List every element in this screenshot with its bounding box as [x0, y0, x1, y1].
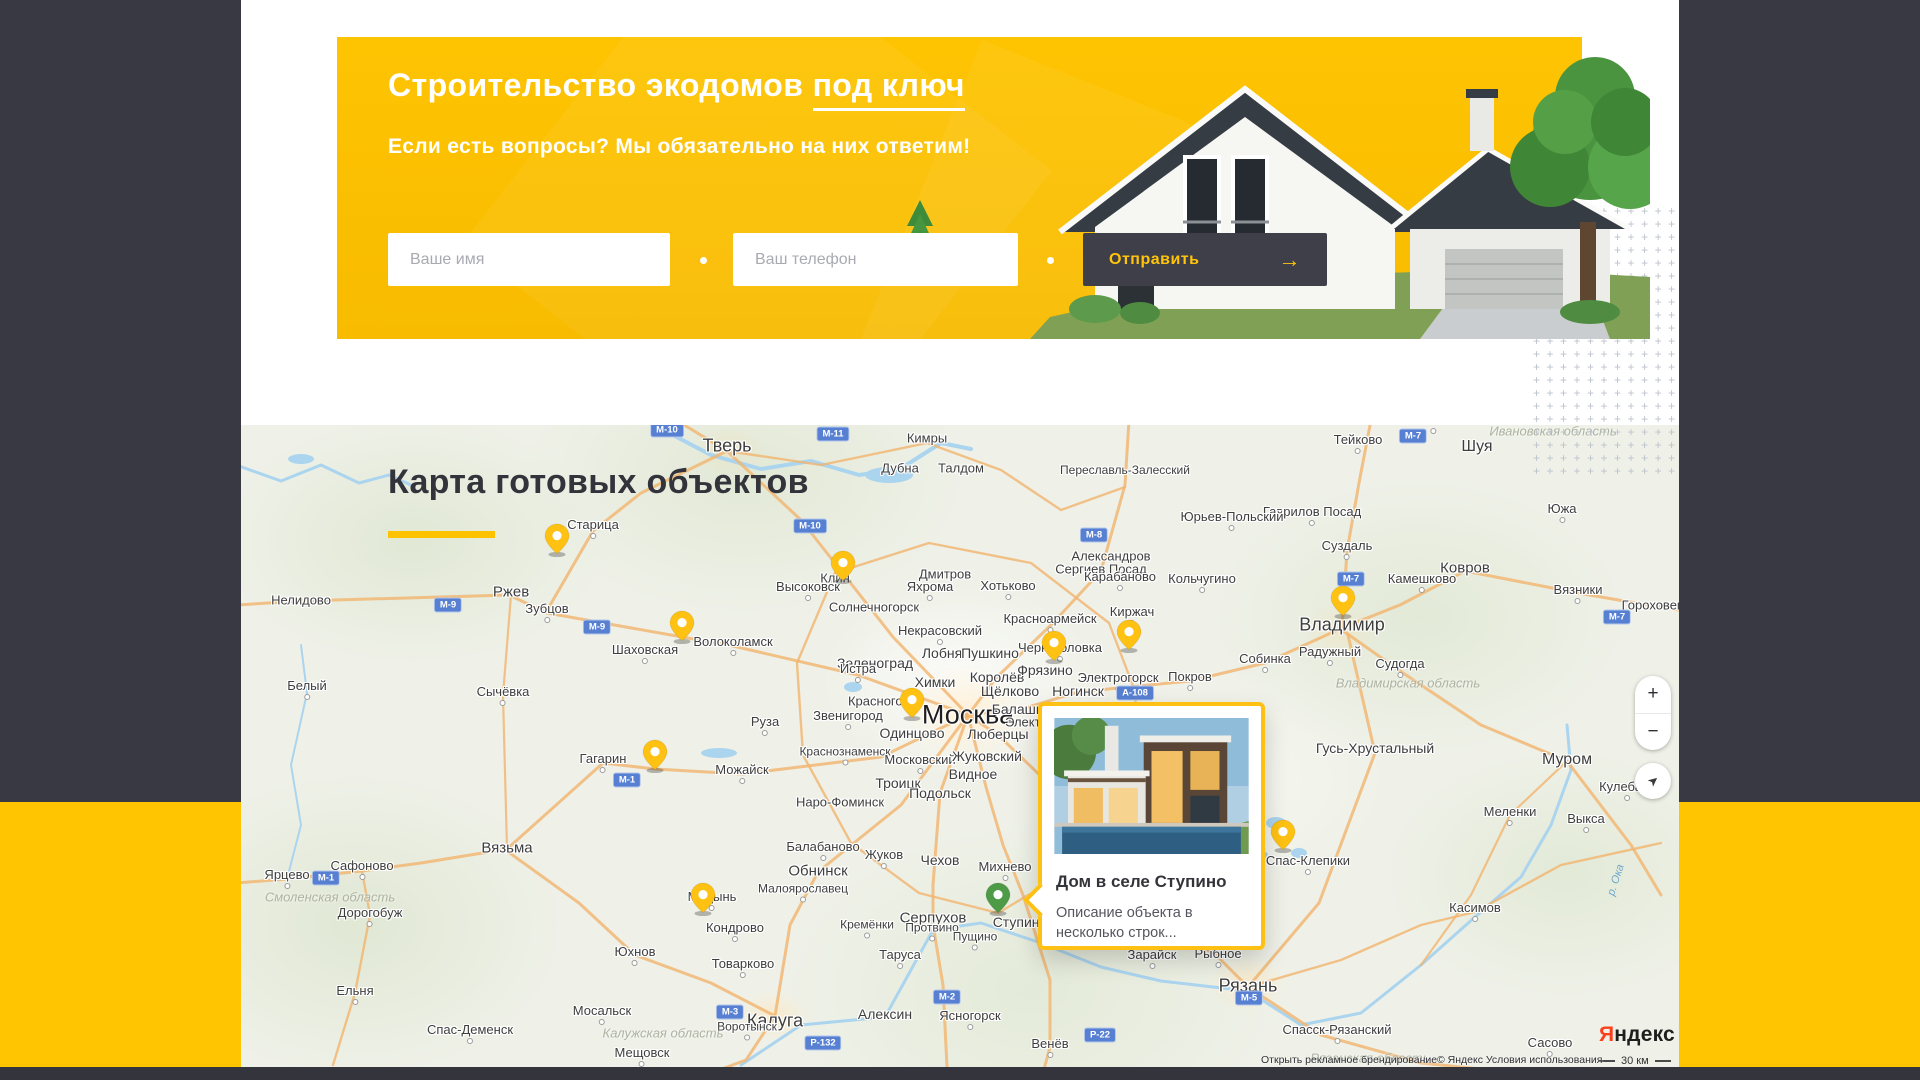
- map-pin-icon[interactable]: [669, 610, 695, 649]
- separator-dot-icon: [1047, 257, 1054, 264]
- zoom-out-button[interactable]: −: [1635, 714, 1671, 751]
- map-pin-icon[interactable]: [690, 882, 716, 921]
- map-title: Карта готовых объектов: [388, 463, 809, 502]
- zoom-controls: + −: [1635, 676, 1671, 750]
- lead-form: Отправить →: [388, 233, 1333, 286]
- map-canvas[interactable]: ТверьКимрыДубнаТалдомПереславль-Залесски…: [241, 425, 1679, 1067]
- submit-button[interactable]: Отправить →: [1083, 233, 1327, 286]
- name-input[interactable]: [388, 233, 670, 286]
- map-scale: 30 км: [1599, 1055, 1671, 1067]
- phone-input[interactable]: [733, 233, 1018, 286]
- map-pin-icon[interactable]: [544, 523, 570, 562]
- map-title-underline: [388, 531, 495, 538]
- locate-arrow-icon: ➤: [1644, 771, 1663, 790]
- arrow-right-icon: →: [1279, 247, 1302, 273]
- map-pin-active-icon[interactable]: [985, 882, 1011, 921]
- yellow-panel-left: [0, 802, 241, 1067]
- yellow-panel-right: [1679, 802, 1920, 1067]
- map-pin-icon[interactable]: [1041, 630, 1067, 669]
- banner-title: Строительство экодомов под ключ: [388, 67, 965, 104]
- page: ТверьКимрыДубнаТалдомПереславль-Залесски…: [0, 0, 1920, 1080]
- map-pin-icon[interactable]: [1270, 819, 1296, 858]
- popup-title: Дом в селе Ступино: [1056, 872, 1249, 892]
- map-pin-icon[interactable]: [830, 550, 856, 589]
- popup-description: Описание объекта в несколько строк...: [1056, 903, 1249, 944]
- bottom-bar: [0, 1067, 1920, 1080]
- object-popup: Дом в селе Ступино Описание объекта в не…: [1038, 702, 1265, 950]
- zoom-in-button[interactable]: +: [1635, 676, 1671, 714]
- separator-dot-icon: [700, 257, 707, 264]
- banner-subtitle: Если есть вопросы? Мы обязательно на них…: [388, 135, 970, 159]
- yandex-logo[interactable]: Яндекс: [1599, 1023, 1675, 1047]
- map-pin-icon[interactable]: [642, 739, 668, 778]
- branding-link[interactable]: Открыть рекламное брендирование: [1261, 1054, 1437, 1066]
- map-pin-icon[interactable]: [1330, 585, 1356, 624]
- banner-title-underlined: под ключ: [813, 67, 965, 111]
- object-photo: [1054, 718, 1249, 854]
- locate-button[interactable]: ➤: [1635, 763, 1671, 799]
- terms-link[interactable]: © Яндекс Условия использования: [1437, 1054, 1602, 1066]
- map-pins-layer: [241, 425, 1679, 1067]
- map-pin-icon[interactable]: [899, 687, 925, 726]
- house-photo: [990, 37, 1650, 339]
- map-pin-icon[interactable]: [1116, 619, 1142, 658]
